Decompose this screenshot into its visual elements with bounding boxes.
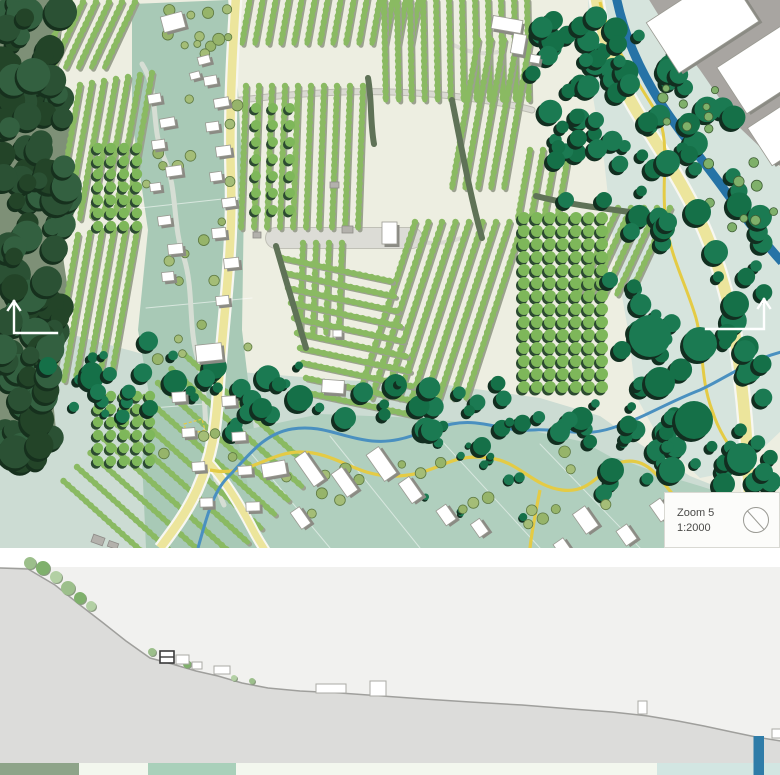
section-tree <box>36 561 50 575</box>
building <box>382 222 400 247</box>
section-tree <box>74 592 86 604</box>
shed <box>330 182 339 188</box>
section-river-bar <box>754 736 765 775</box>
map-legend-box: Zoom 5 1:2000 <box>664 492 780 548</box>
site-plan-svg <box>0 0 780 775</box>
section-building <box>370 681 386 696</box>
section-tree <box>24 557 36 569</box>
band-mint-1 <box>79 763 148 775</box>
sheet-gap <box>0 548 780 567</box>
shed <box>253 232 261 238</box>
legend-scale-label: 1:2000 <box>677 522 714 534</box>
band-mint-2 <box>236 763 657 775</box>
section-building <box>192 662 202 669</box>
section-building <box>638 701 647 714</box>
section-building <box>772 729 780 738</box>
shed <box>342 226 353 233</box>
section-building <box>214 666 230 674</box>
building <box>195 342 225 365</box>
section-tree <box>50 571 62 583</box>
landscape-plan-sheet: Zoom 5 1:2000 <box>0 0 780 775</box>
north-arrow-icon <box>741 505 771 535</box>
section-tree <box>231 675 237 681</box>
legend-zoom-label: Zoom 5 <box>677 507 714 519</box>
section-tree <box>61 581 75 595</box>
section-building <box>176 655 189 664</box>
section-drawing <box>0 548 780 775</box>
building <box>321 379 347 397</box>
section-tree <box>148 648 156 656</box>
section-building <box>316 684 346 693</box>
section-tree <box>249 678 255 684</box>
band-sage <box>0 763 79 775</box>
section-tree <box>86 601 96 611</box>
band-teal <box>148 763 236 775</box>
legend-text: Zoom 5 1:2000 <box>677 507 714 534</box>
